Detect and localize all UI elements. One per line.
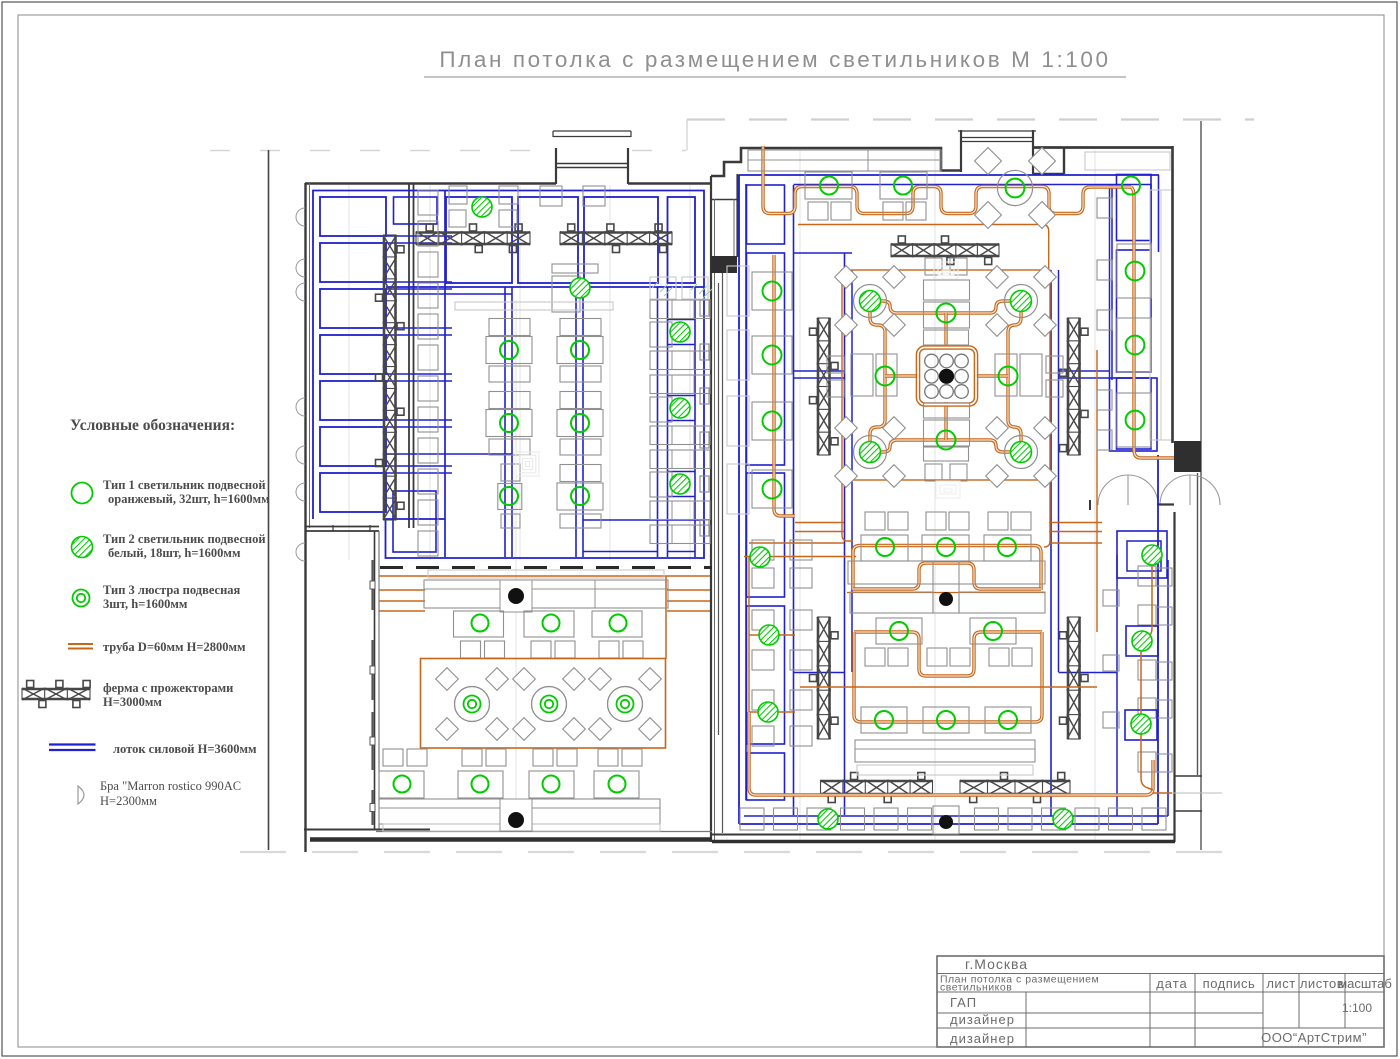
svg-text:ферма с прожекторами: ферма с прожекторами	[103, 681, 233, 695]
svg-text:оранжевый, 32шт, h=1600мм: оранжевый, 32шт, h=1600мм	[108, 492, 270, 506]
svg-text:лоток силовой H=3600мм: лоток силовой H=3600мм	[113, 742, 257, 756]
svg-text:Тип 3 люстра подвесная: Тип 3 люстра подвесная	[103, 583, 241, 597]
svg-text:Тип 1 светильник подвесной: Тип 1 светильник подвесной	[103, 478, 266, 492]
svg-text:труба D=60мм H=2800мм: труба D=60мм H=2800мм	[103, 640, 246, 654]
svg-text:Тип 2 светильник подвесной: Тип 2 светильник подвесной	[103, 532, 266, 546]
svg-text:подпись: подпись	[1203, 976, 1256, 991]
svg-text:лист: лист	[1266, 976, 1295, 991]
svg-text:белый, 18шт, h=1600мм: белый, 18шт, h=1600мм	[108, 546, 241, 560]
svg-text:1:100: 1:100	[1342, 1001, 1372, 1015]
svg-text:3шт, h=1600мм: 3шт, h=1600мм	[103, 597, 188, 611]
svg-text:ООО“АртСтрим”: ООО“АртСтрим”	[1261, 1030, 1367, 1045]
svg-text:дизайнер: дизайнер	[950, 1031, 1015, 1046]
svg-text:светильников: светильников	[940, 982, 1012, 994]
svg-text:дата: дата	[1156, 976, 1188, 991]
svg-text:План потолка с размещением све: План потолка с размещением светильников …	[439, 47, 1110, 72]
svg-text:Условные обозначения:: Условные обозначения:	[70, 417, 235, 434]
svg-text:дизайнер: дизайнер	[950, 1012, 1015, 1027]
svg-text:масштаб: масштаб	[1338, 976, 1392, 991]
svg-text:H=3000мм: H=3000мм	[103, 695, 162, 709]
svg-text:ГАП: ГАП	[950, 995, 977, 1010]
svg-text:Н=2300мм: Н=2300мм	[100, 794, 157, 808]
svg-text:Бра "Marron rostico 990AC: Бра "Marron rostico 990AC	[100, 779, 241, 793]
svg-text:г.Москва: г.Москва	[965, 956, 1028, 972]
